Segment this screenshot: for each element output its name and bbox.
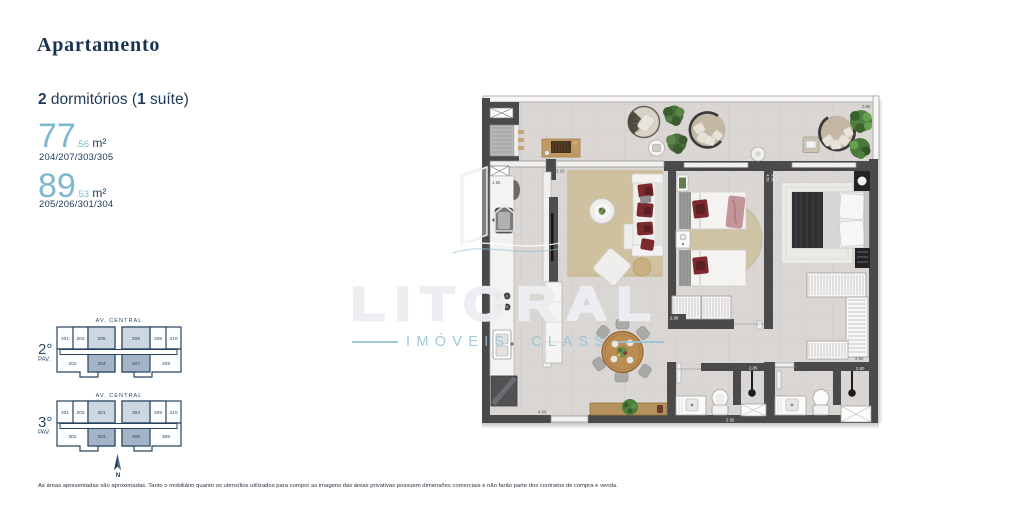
svg-text:2.85: 2.85: [749, 366, 758, 371]
svg-text:4.50: 4.50: [766, 174, 771, 183]
svg-text:0.80: 0.80: [862, 104, 871, 109]
svg-text:2.60: 2.60: [855, 356, 864, 361]
svg-text:3°: 3°: [38, 414, 52, 431]
svg-text:PAV.: PAV.: [38, 357, 51, 363]
svg-text:2°: 2°: [38, 341, 52, 358]
svg-text:209: 209: [162, 361, 170, 367]
svg-text:204: 204: [97, 361, 105, 367]
svg-text:208: 208: [154, 336, 162, 342]
svg-text:303: 303: [97, 434, 105, 440]
svg-text:201: 201: [61, 410, 69, 416]
svg-text:202: 202: [68, 361, 76, 367]
svg-text:2.95: 2.95: [726, 418, 735, 423]
svg-text:N: N: [116, 472, 121, 479]
svg-text:PAV.: PAV.: [38, 430, 51, 436]
svg-text:306: 306: [162, 434, 170, 440]
svg-text:3.30: 3.30: [771, 174, 776, 183]
svg-text:2.80: 2.80: [856, 366, 865, 371]
svg-text:2.88: 2.88: [670, 316, 679, 321]
svg-text:AV. CENTRAL: AV. CENTRAL: [96, 393, 143, 399]
svg-text:302: 302: [68, 434, 76, 440]
svg-text:207: 207: [132, 361, 140, 367]
svg-text:4.60: 4.60: [538, 410, 547, 415]
svg-text:210: 210: [169, 410, 177, 416]
svg-text:205: 205: [97, 336, 105, 342]
svg-text:305: 305: [132, 434, 140, 440]
svg-text:1.55: 1.55: [492, 180, 501, 185]
svg-text:201: 201: [61, 336, 69, 342]
svg-text:203: 203: [76, 336, 84, 342]
svg-text:AV. CENTRAL: AV. CENTRAL: [96, 318, 143, 324]
svg-text:3.10: 3.10: [556, 169, 565, 174]
svg-text:210: 210: [169, 336, 177, 342]
svg-text:203: 203: [76, 410, 84, 416]
svg-text:208: 208: [154, 410, 162, 416]
svg-text:301: 301: [97, 410, 105, 416]
svg-text:206: 206: [132, 336, 140, 342]
svg-text:304: 304: [132, 410, 140, 416]
